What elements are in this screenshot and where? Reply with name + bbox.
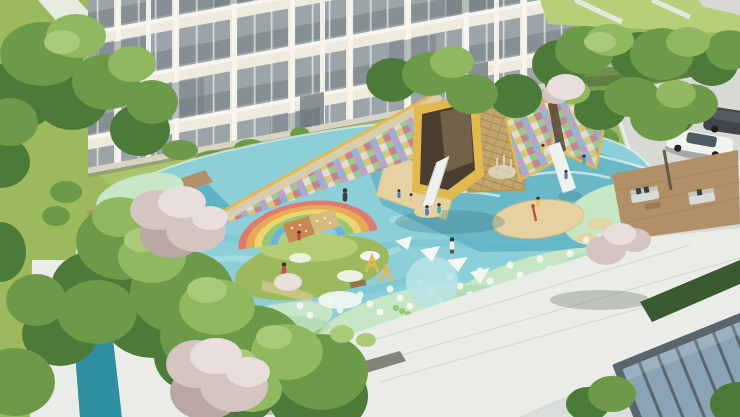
person — [398, 189, 401, 198]
person — [564, 170, 567, 179]
person — [343, 188, 348, 201]
pavilion-shadow — [395, 210, 505, 234]
person — [450, 237, 455, 253]
rendering-image — [0, 0, 740, 417]
playground-rendering-svg — [0, 0, 740, 417]
person — [410, 193, 413, 202]
person — [425, 205, 429, 216]
person — [541, 144, 544, 153]
person — [536, 196, 539, 206]
person — [297, 230, 300, 240]
person — [437, 203, 441, 214]
person — [582, 154, 585, 164]
